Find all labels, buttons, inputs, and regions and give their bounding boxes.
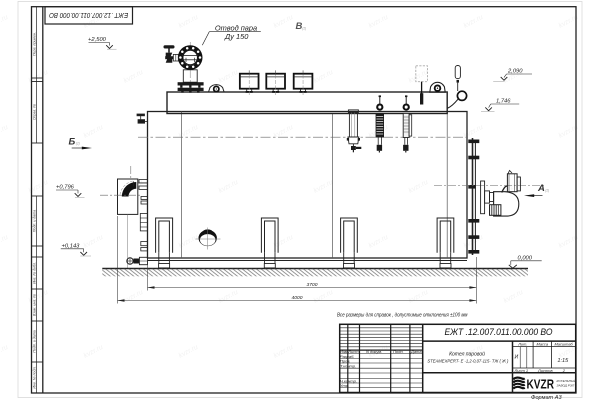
svg-text:Б: Б <box>69 136 76 147</box>
svg-text:KVZR: KVZR <box>527 377 555 392</box>
svg-text:Справ. №: Справ. № <box>33 104 37 120</box>
svg-text:Перв. примен.: Перв. примен. <box>33 32 37 56</box>
svg-text:Формат А3: Формат А3 <box>531 395 562 400</box>
svg-text:ЗАВОД РЭП: ЗАВОД РЭП <box>557 384 576 388</box>
svg-text:КОТЕЛЬНЫЙ: КОТЕЛЬНЫЙ <box>557 379 577 383</box>
svg-text:Инв. № подл.: Инв. № подл. <box>33 366 37 388</box>
svg-text:Масса: Масса <box>537 342 549 347</box>
svg-text:STEAMEXPERT- Е -1,2-0,07-115-: STEAMEXPERT- Е -1,2-0,07-115- ТЖ ( Ж ) <box>427 359 508 364</box>
svg-text:4000: 4000 <box>292 295 303 301</box>
svg-text:+0,143: +0,143 <box>62 243 81 249</box>
svg-text:3700: 3700 <box>307 282 318 288</box>
svg-text:И: И <box>514 355 518 361</box>
svg-text:Лист 1: Лист 1 <box>514 368 529 373</box>
svg-text:1:15: 1:15 <box>557 358 569 364</box>
svg-text:Котел паровой: Котел паровой <box>449 350 485 357</box>
svg-text:Ду 150: Ду 150 <box>224 32 249 41</box>
svg-text:Взам. инв. №: Взам. инв. № <box>33 294 37 316</box>
svg-text:Лит.: Лит. <box>517 342 527 347</box>
svg-text:Утв.: Утв. <box>340 383 349 388</box>
svg-text:Все размеры для справок , допу: Все размеры для справок , допустимые отк… <box>337 313 468 319</box>
svg-text:N докум.: N докум. <box>366 349 382 354</box>
svg-text:ЕЖТ .12.007.011.00.000 ВО: ЕЖТ .12.007.011.00.000 ВО <box>49 11 128 18</box>
svg-text:А: А <box>537 183 545 194</box>
svg-text:Дата: Дата <box>410 349 422 354</box>
svg-text:(2): (2) <box>302 26 306 30</box>
svg-text:Листов: Листов <box>537 368 553 373</box>
svg-text:Подп.: Подп. <box>393 349 404 354</box>
svg-text:(2): (2) <box>545 188 549 192</box>
svg-text:Масштаб: Масштаб <box>555 342 574 347</box>
svg-text:ЕЖТ .12.007.011.00.000 ВО: ЕЖТ .12.007.011.00.000 ВО <box>445 327 553 337</box>
svg-text:Подп. и дата: Подп. и дата <box>33 330 37 353</box>
svg-text:(2): (2) <box>76 142 80 146</box>
svg-text:Т.контр.: Т.контр. <box>340 364 356 369</box>
svg-text:Подп. и дата: Подп. и дата <box>33 210 37 233</box>
svg-text:Инв. № дубл.: Инв. № дубл. <box>33 262 37 284</box>
